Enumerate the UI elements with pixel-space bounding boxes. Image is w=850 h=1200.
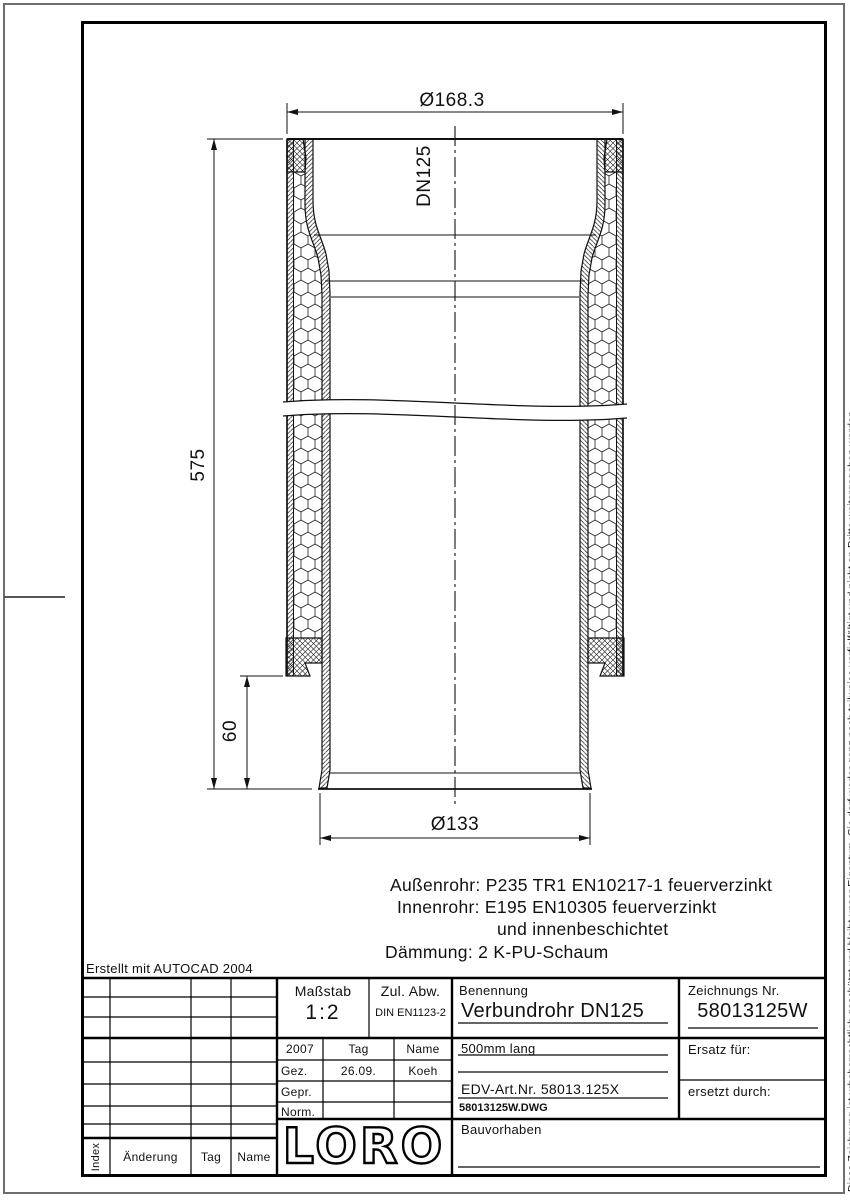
approval-col-tag: Tag xyxy=(323,1042,394,1056)
dim-length-575: 575 xyxy=(188,448,209,481)
loro-logo: LORO xyxy=(283,1118,446,1175)
approval-row-gepr: Gepr. xyxy=(281,1085,312,1099)
material-line-daemmung: Dämmung: 2 K-PU-Schaum xyxy=(385,942,608,962)
revision-col-name: Name xyxy=(231,1150,277,1164)
approval-gez-date: 26.09. xyxy=(323,1064,394,1078)
material-line-innenrohr: Innenrohr: E195 EN10305 feuerverzinkt xyxy=(397,897,717,917)
benennung-value: Verbundrohr DN125 xyxy=(461,1000,644,1023)
subtitle-length: 500mm lang xyxy=(461,1041,536,1056)
dimension-lines xyxy=(207,103,623,845)
zul-abw-value: DIN EN1123-2 xyxy=(369,1007,452,1019)
benennung-label: Benennung xyxy=(459,983,528,998)
material-line-aussenrohr: Außenrohr: P235 TR1 EN10217-1 feuerverzi… xyxy=(390,875,772,895)
drawing-sheet: Ø168.3 DN125 575 60 Ø133 Außenrohr: P235… xyxy=(0,0,850,1200)
approval-col-name: Name xyxy=(394,1042,452,1056)
edv-art-nr: EDV-Art.Nr. 58013.125X xyxy=(461,1081,619,1097)
dim-spigot-60: 60 xyxy=(220,720,241,742)
revision-col-index: Index xyxy=(90,1143,102,1171)
massstab-label: Maßstab xyxy=(277,983,369,999)
zeichnungs-nr-value: 58013125W xyxy=(679,1000,826,1023)
massstab-value: 1:2 xyxy=(277,1001,369,1025)
pipe-section-left xyxy=(286,139,330,788)
zul-abw-label: Zul. Abw. xyxy=(369,983,452,999)
copyright-note-vertical: Diese Zeichnung ist urheberrechtlich ges… xyxy=(846,287,850,1192)
material-line-beschichtung: und innenbeschichtet xyxy=(497,919,668,939)
dimension-arrows xyxy=(211,109,623,841)
dim-inner-diameter: Ø133 xyxy=(431,814,479,835)
zeichnungs-nr-label: Zeichnungs Nr. xyxy=(688,983,780,998)
ersetzt-durch-label: ersetzt durch: xyxy=(688,1084,771,1099)
bauvorhaben-label: Bauvorhaben xyxy=(461,1122,542,1137)
dwg-filename: 58013125W.DWG xyxy=(459,1102,548,1114)
ersatz-fuer-label: Ersatz für: xyxy=(688,1042,751,1057)
approval-gez-name: Koeh xyxy=(394,1064,452,1078)
created-with-note: Erstellt mit AUTOCAD 2004 xyxy=(86,961,253,976)
revision-col-tag: Tag xyxy=(191,1150,231,1164)
dim-nominal-dn125: DN125 xyxy=(414,145,435,207)
revision-col-aenderung: Änderung xyxy=(110,1150,191,1164)
approval-row-gez: Gez. xyxy=(281,1064,308,1078)
approval-year: 2007 xyxy=(277,1042,323,1056)
approval-row-norm: Norm. xyxy=(281,1105,315,1119)
dim-outer-diameter: Ø168.3 xyxy=(419,90,484,111)
